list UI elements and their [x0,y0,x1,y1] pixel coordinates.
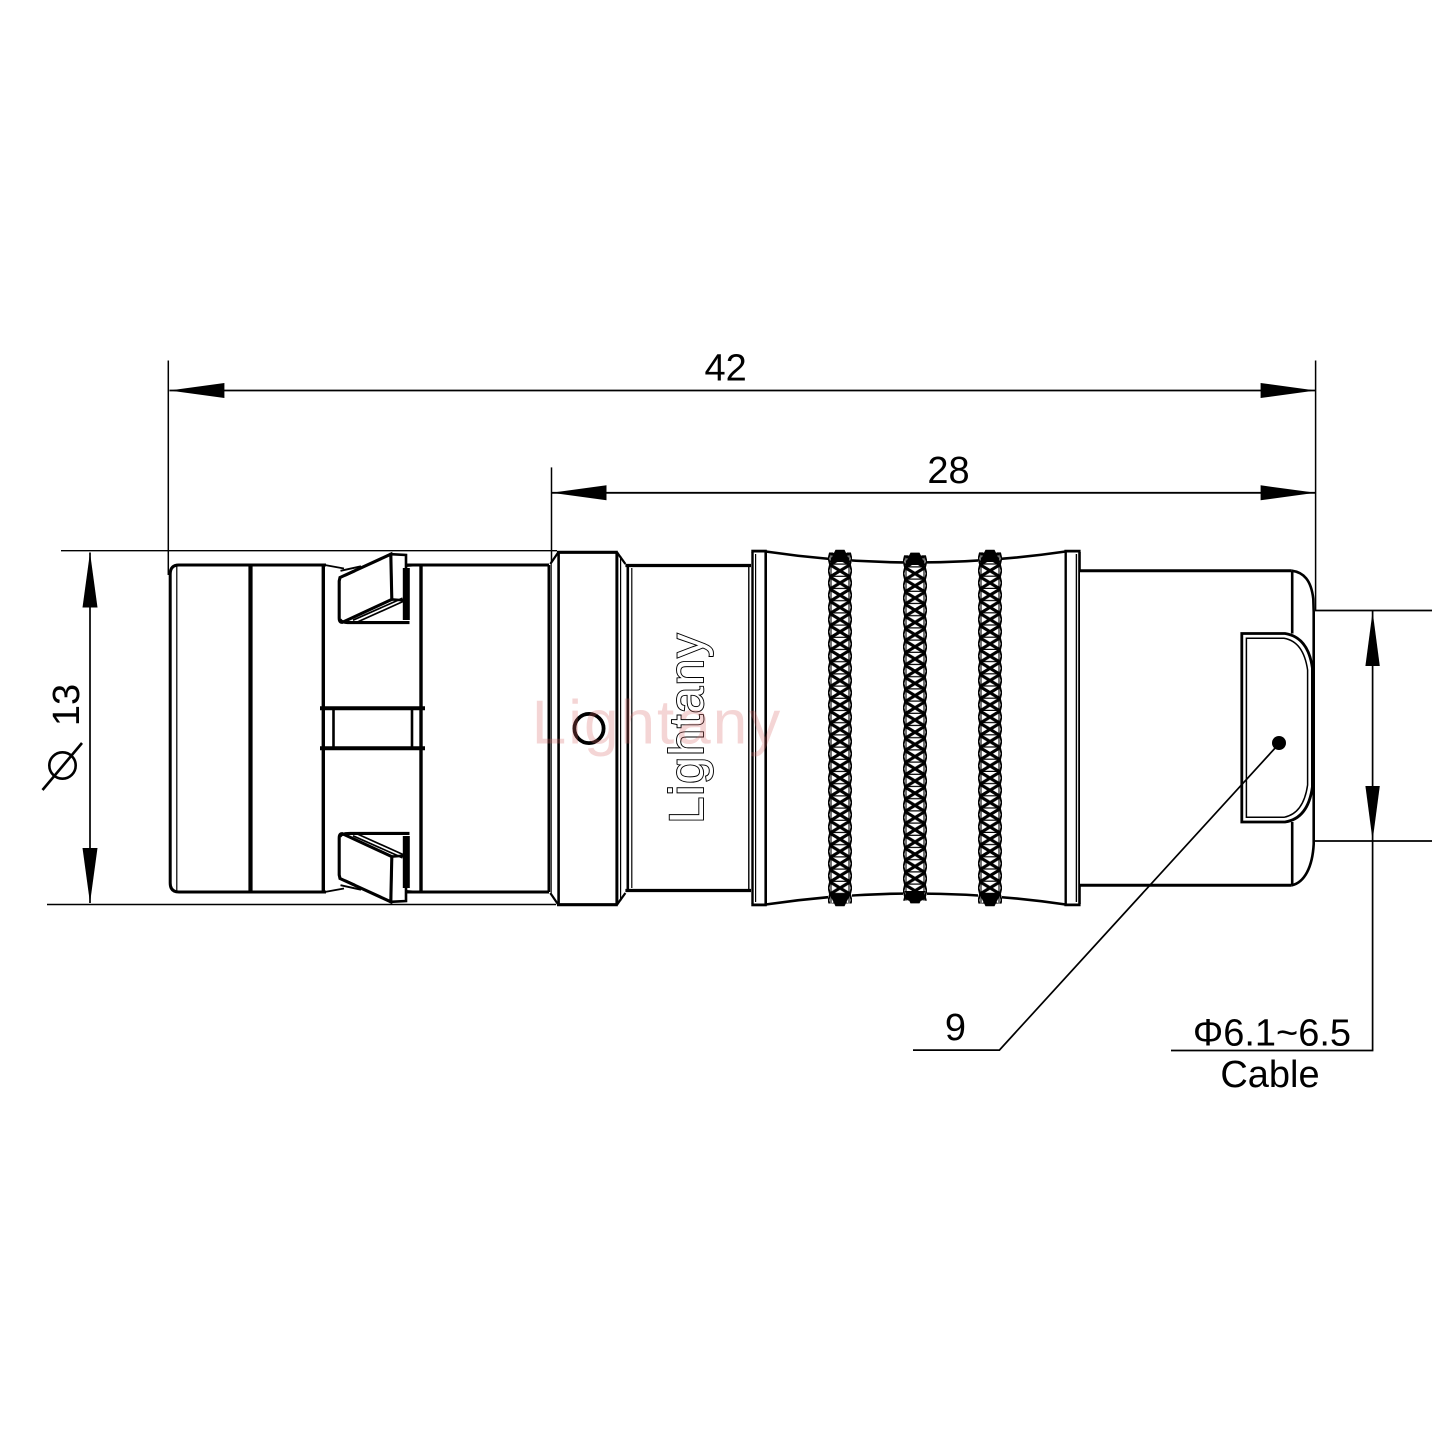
svg-text:Φ6.1~6.5: Φ6.1~6.5 [1193,1013,1351,1055]
svg-text:9: 9 [945,1007,966,1049]
svg-text:13: 13 [46,684,88,726]
svg-text:Cable: Cable [1220,1054,1319,1096]
svg-text:28: 28 [927,450,969,492]
svg-text:Lightany: Lightany [532,689,782,758]
svg-text:42: 42 [704,348,746,390]
